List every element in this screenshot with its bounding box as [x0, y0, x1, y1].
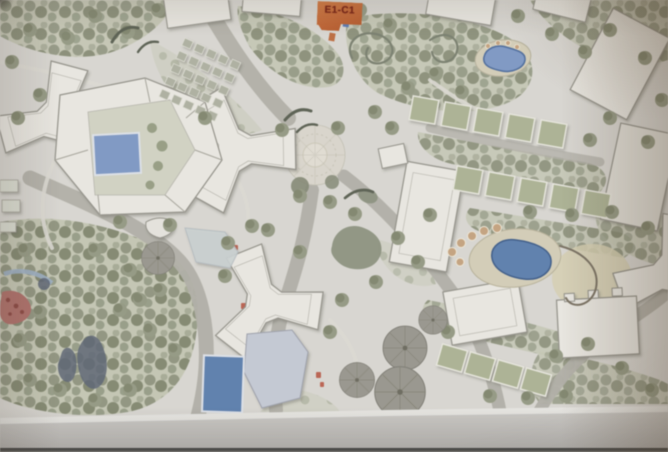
courtyard-pool	[93, 133, 141, 175]
photo-bottom-edge	[0, 448, 668, 452]
tower-southeast	[556, 287, 639, 358]
label-tag-text: E1-C1	[317, 4, 362, 16]
site-plan-map	[0, 0, 668, 452]
photo-content: E1-C1	[0, 0, 668, 452]
photo-frame: E1-C1	[0, 0, 668, 452]
south-lap-pool	[202, 355, 244, 412]
